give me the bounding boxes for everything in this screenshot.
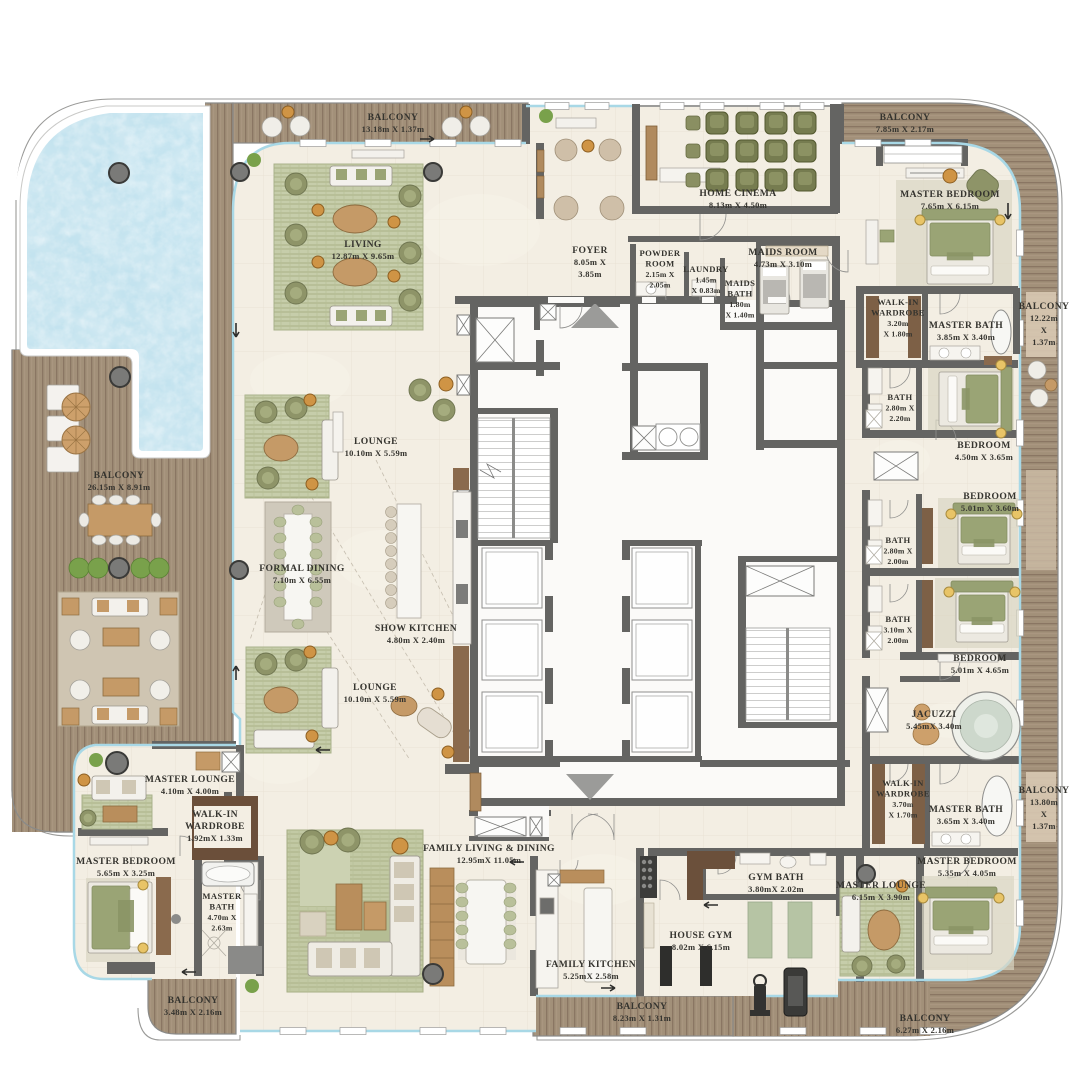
svg-text:5.35m X 4.05m: 5.35m X 4.05m — [938, 868, 996, 878]
svg-text:BALCONY: BALCONY — [368, 112, 419, 123]
svg-text:BALCONY: BALCONY — [1019, 785, 1070, 796]
svg-text:MASTER BEDROOM: MASTER BEDROOM — [917, 856, 1017, 867]
svg-text:7.65m X 6.15m: 7.65m X 6.15m — [921, 201, 979, 211]
svg-text:MASTER BEDROOM: MASTER BEDROOM — [900, 189, 1000, 200]
svg-text:GYM BATH: GYM BATH — [748, 872, 804, 883]
svg-text:HOUSE GYM: HOUSE GYM — [669, 930, 732, 941]
svg-text:8.13m X 4.50m: 8.13m X 4.50m — [709, 200, 767, 210]
svg-text:2.80m X: 2.80m X — [883, 547, 912, 556]
svg-text:BATH: BATH — [885, 614, 910, 624]
svg-text:MASTER LOUNGE: MASTER LOUNGE — [145, 774, 235, 785]
svg-text:12.87m X 9.65m: 12.87m X 9.65m — [332, 251, 395, 261]
svg-text:5.01m X 4.65m: 5.01m X 4.65m — [951, 665, 1009, 675]
svg-text:SHOW KITCHEN: SHOW KITCHEN — [375, 623, 457, 634]
svg-text:BEDROOM: BEDROOM — [957, 440, 1010, 451]
svg-text:BALCONY: BALCONY — [617, 1001, 668, 1012]
svg-text:WALK-IN: WALK-IN — [192, 809, 238, 820]
svg-text:ROOM: ROOM — [645, 259, 674, 269]
svg-text:2.63m: 2.63m — [211, 924, 232, 933]
svg-text:BALCONY: BALCONY — [168, 995, 219, 1006]
svg-text:LAUNDRY: LAUNDRY — [683, 264, 729, 274]
svg-text:MASTER BATH: MASTER BATH — [929, 804, 1003, 815]
svg-text:2.15m X: 2.15m X — [645, 270, 674, 279]
svg-text:8.05m X: 8.05m X — [574, 257, 607, 267]
svg-text:WARDROBE: WARDROBE — [871, 308, 925, 318]
svg-text:2.20m: 2.20m — [889, 414, 910, 423]
svg-text:2.80m X: 2.80m X — [885, 404, 914, 413]
svg-text:4.10m X 4.00m: 4.10m X 4.00m — [161, 786, 219, 796]
svg-text:6.27m X 2.16m: 6.27m X 2.16m — [896, 1025, 954, 1035]
svg-text:13.18m X 1.37m: 13.18m X 1.37m — [362, 124, 425, 134]
svg-text:2.05m: 2.05m — [649, 281, 670, 290]
svg-text:LOUNGE: LOUNGE — [353, 682, 397, 693]
svg-text:3.85m X 3.40m: 3.85m X 3.40m — [937, 332, 995, 342]
svg-text:3.10m X: 3.10m X — [883, 626, 912, 635]
svg-text:1.37m: 1.37m — [1032, 821, 1055, 831]
svg-text:4.73m X 3.10m: 4.73m X 3.10m — [754, 259, 812, 269]
svg-text:5.65m X 3.25m: 5.65m X 3.25m — [97, 868, 155, 878]
svg-text:5.45mX 3.40m: 5.45mX 3.40m — [906, 721, 962, 731]
svg-text:BATH: BATH — [885, 535, 910, 545]
svg-text:MAIDS ROOM: MAIDS ROOM — [748, 247, 817, 258]
svg-text:BATH: BATH — [209, 902, 234, 912]
svg-text:X 1.80m: X 1.80m — [883, 330, 912, 339]
svg-text:3.85m: 3.85m — [578, 269, 601, 279]
svg-text:FORMAL DINING: FORMAL DINING — [259, 563, 345, 574]
svg-text:BALCONY: BALCONY — [1019, 301, 1070, 312]
svg-text:FOYER: FOYER — [572, 245, 608, 256]
svg-text:8.02m X 6.15m: 8.02m X 6.15m — [672, 942, 730, 952]
svg-text:6.15m X 3.90m: 6.15m X 3.90m — [852, 892, 910, 902]
svg-text:MASTER: MASTER — [202, 891, 242, 901]
svg-text:WARDROBE: WARDROBE — [185, 821, 245, 832]
svg-text:MASTER BEDROOM: MASTER BEDROOM — [76, 856, 176, 867]
svg-text:10.10m X 5.59m: 10.10m X 5.59m — [345, 448, 408, 458]
svg-text:7.85m X 2.17m: 7.85m X 2.17m — [876, 124, 934, 134]
svg-text:10.10m X 5.59m: 10.10m X 5.59m — [344, 694, 407, 704]
svg-text:BEDROOM: BEDROOM — [953, 653, 1006, 664]
svg-text:X: X — [1041, 809, 1048, 819]
svg-text:X 0.83m: X 0.83m — [691, 286, 720, 295]
svg-text:3.65m X 3.40m: 3.65m X 3.40m — [937, 816, 995, 826]
svg-text:WALK-IN: WALK-IN — [882, 778, 924, 788]
svg-text:2.00m: 2.00m — [887, 557, 908, 566]
svg-text:MASTER LOUNGE: MASTER LOUNGE — [836, 880, 926, 891]
svg-text:MASTER BATH: MASTER BATH — [929, 320, 1003, 331]
svg-text:5.01m X 3.60m: 5.01m X 3.60m — [961, 503, 1019, 513]
svg-text:13.80m: 13.80m — [1030, 797, 1058, 807]
svg-text:3.70m: 3.70m — [892, 800, 913, 809]
svg-text:4.50m X 3.65m: 4.50m X 3.65m — [955, 452, 1013, 462]
svg-text:BALCONY: BALCONY — [94, 470, 145, 481]
svg-text:X 1.70m: X 1.70m — [888, 811, 917, 820]
svg-text:X 1.40m: X 1.40m — [725, 311, 754, 320]
svg-text:2.00m: 2.00m — [887, 636, 908, 645]
svg-text:5.25mX 2.58m: 5.25mX 2.58m — [563, 971, 619, 981]
svg-text:X: X — [1041, 325, 1048, 335]
svg-text:4.80m X 2.40m: 4.80m X 2.40m — [387, 635, 445, 645]
svg-text:3.48m X 2.16m: 3.48m X 2.16m — [164, 1007, 222, 1017]
svg-text:1.45m: 1.45m — [695, 276, 716, 285]
svg-text:POWDER: POWDER — [639, 248, 680, 258]
svg-text:JACUZZI: JACUZZI — [912, 709, 957, 720]
svg-text:3.80mX 2.02m: 3.80mX 2.02m — [748, 884, 804, 894]
svg-text:LIVING: LIVING — [344, 239, 382, 250]
svg-text:WARDROBE: WARDROBE — [876, 789, 930, 799]
svg-text:WALK-IN: WALK-IN — [877, 297, 919, 307]
svg-text:12.22m: 12.22m — [1030, 313, 1058, 323]
svg-text:BEDROOM: BEDROOM — [963, 491, 1016, 502]
svg-text:7.10m X 6.55m: 7.10m X 6.55m — [273, 575, 331, 585]
svg-text:FAMILY KITCHEN: FAMILY KITCHEN — [546, 959, 636, 970]
svg-text:26.15m X 8.91m: 26.15m X 8.91m — [88, 482, 151, 492]
svg-text:8.23m X 1.31m: 8.23m X 1.31m — [613, 1013, 671, 1023]
svg-text:LOUNGE: LOUNGE — [354, 436, 398, 447]
svg-text:1.92mX 1.33m: 1.92mX 1.33m — [187, 833, 243, 843]
svg-text:FAMILY LIVING & DINING: FAMILY LIVING & DINING — [423, 843, 555, 854]
svg-text:4.70m X: 4.70m X — [207, 913, 236, 922]
svg-text:1.80m: 1.80m — [729, 300, 750, 309]
svg-text:HOME CINEMA: HOME CINEMA — [699, 188, 776, 199]
svg-text:3.20m: 3.20m — [887, 319, 908, 328]
svg-text:BATH: BATH — [887, 392, 912, 402]
svg-text:BALCONY: BALCONY — [900, 1013, 951, 1024]
svg-text:MAIDS: MAIDS — [725, 278, 756, 288]
svg-text:1.37m: 1.37m — [1032, 337, 1055, 347]
svg-text:BALCONY: BALCONY — [880, 112, 931, 123]
svg-text:BATH: BATH — [727, 289, 752, 299]
